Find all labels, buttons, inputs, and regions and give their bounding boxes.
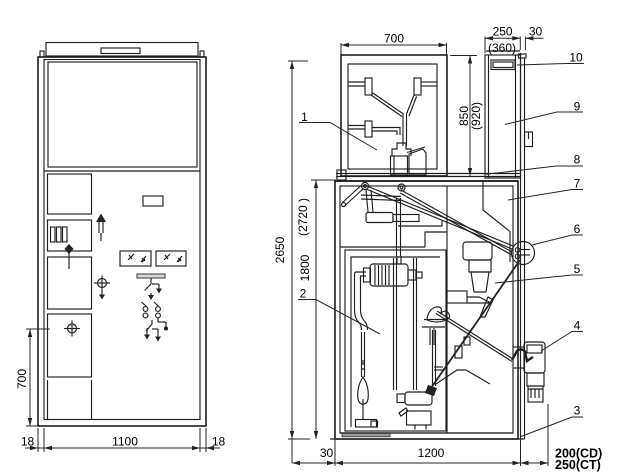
- svg-text:18: 18: [212, 435, 226, 449]
- svg-text:1100: 1100: [112, 435, 138, 449]
- svg-text:(360): (360): [488, 41, 516, 55]
- svg-text:2650: 2650: [273, 236, 287, 263]
- svg-text:10: 10: [569, 51, 583, 65]
- svg-text:9: 9: [574, 100, 581, 114]
- svg-text:3: 3: [574, 404, 581, 418]
- svg-text:2: 2: [300, 287, 307, 301]
- svg-text:7: 7: [574, 177, 581, 191]
- svg-text:30: 30: [320, 446, 334, 460]
- svg-text:1: 1: [301, 110, 308, 124]
- svg-text:18: 18: [21, 435, 35, 449]
- svg-text:4: 4: [574, 319, 581, 333]
- svg-text:700: 700: [384, 32, 404, 46]
- svg-text:700: 700: [15, 369, 29, 389]
- svg-text:(920): (920): [469, 102, 483, 130]
- svg-text:30: 30: [529, 25, 543, 39]
- svg-text:6: 6: [574, 222, 581, 236]
- svg-text:5: 5: [574, 262, 581, 276]
- svg-text:250: 250: [493, 25, 513, 39]
- svg-text:1800: 1800: [298, 254, 312, 281]
- svg-text:(2720 ): (2720 ): [296, 198, 310, 236]
- svg-text:1200: 1200: [418, 446, 445, 460]
- svg-text:250(CT): 250(CT): [555, 458, 601, 472]
- svg-text:8: 8: [574, 153, 581, 167]
